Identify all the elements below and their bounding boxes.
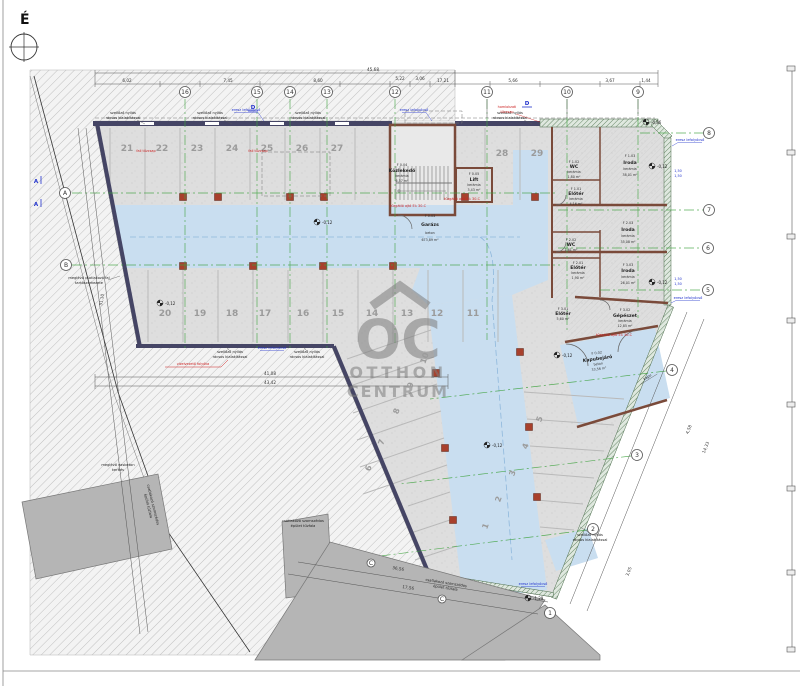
svg-text:rácsos kialakítással: rácsos kialakítással: [213, 355, 248, 359]
grid-bubble: 15: [253, 89, 261, 96]
level-value: -1,29: [533, 596, 544, 601]
dimension-text: 43,42: [264, 380, 276, 385]
level-value: -0,12: [562, 353, 573, 358]
svg-text:eresz lefolyócső: eresz lefolyócső: [258, 346, 287, 350]
dimension-text: 1,50: [674, 277, 682, 281]
parking-number: 23: [191, 144, 204, 154]
section-label: A: [34, 202, 39, 208]
svg-text:csatlakozó szomszédos: csatlakozó szomszédos: [282, 519, 324, 523]
parking-number: 14: [366, 309, 379, 319]
floorplan-canvas: É: [0, 0, 800, 686]
edge-ruler: [787, 66, 795, 652]
svg-text:12,85 m²: 12,85 m²: [617, 324, 633, 328]
svg-text:tűzcsap: tűzcsap: [500, 110, 513, 114]
north-arrow: É: [9, 11, 39, 62]
hydrant-label: fali tűzcsap: [136, 149, 155, 153]
office-floor: [552, 127, 667, 305]
svg-text:kerámia: kerámia: [467, 183, 480, 187]
svg-text:kerámia: kerámia: [621, 234, 634, 238]
hydrant-label: fali tűzcsap: [248, 149, 267, 153]
section-label: A: [34, 179, 39, 185]
watermark-line1: OTTHON: [349, 363, 446, 382]
svg-text:kerámia: kerámia: [395, 174, 408, 178]
parking-number: 16: [297, 309, 310, 319]
svg-text:1,80 m²: 1,80 m²: [568, 175, 582, 179]
neighbor-mark: C: [369, 560, 373, 567]
svg-text:Iroda: Iroda: [623, 160, 637, 166]
grid-bubble: 2: [591, 526, 595, 533]
dimension-text: 3,06: [415, 76, 425, 81]
svg-text:F 2.01: F 2.01: [573, 261, 584, 265]
svg-text:épület tűzfala: épület tűzfala: [291, 524, 316, 528]
room-label-wc1: F 1.02 WC kerámia 1,80 m²: [567, 160, 581, 179]
grid-bubble: 13: [323, 89, 331, 96]
grid-bubble: 12: [391, 89, 399, 96]
parking-number: 15: [332, 309, 345, 319]
fire-door-label: tűzgátló ajtó EI₂ 30-C: [390, 204, 427, 208]
dimension-text: 8,60: [313, 78, 323, 83]
parking-number: 29: [531, 149, 544, 159]
parking-number: 26: [296, 144, 309, 154]
svg-text:szellőző nyílás: szellőző nyílás: [577, 533, 603, 537]
dimension-text: 14,33: [701, 441, 710, 454]
dimension-text: 1,50: [674, 169, 682, 173]
parking-number: 18: [226, 309, 239, 319]
svg-text:rácsos kialakítással: rácsos kialakítással: [106, 116, 141, 120]
grid-bubble: 9: [636, 89, 640, 96]
grid-bubble: 4: [670, 367, 674, 374]
svg-text:kerámia: kerámia: [571, 271, 584, 275]
parking-number: 28: [496, 149, 509, 159]
svg-text:4,16 m²: 4,16 m²: [570, 202, 584, 206]
level-value: -0,12: [165, 301, 176, 306]
dimension-text: 4,58: [685, 424, 693, 435]
svg-text:eresz lefolyócső: eresz lefolyócső: [676, 138, 705, 142]
grid-bubble: 16: [181, 89, 189, 96]
svg-text:eresz lefolyócső: eresz lefolyócső: [400, 108, 429, 112]
parking-number: 27: [331, 144, 344, 154]
svg-text:kerámia: kerámia: [569, 197, 582, 201]
dimension-text: 6,02: [122, 78, 132, 83]
dimension-text: 5,66: [508, 78, 518, 83]
grid-bubble: B: [64, 262, 68, 269]
svg-text:meglévő csatlakozó fal: meglévő csatlakozó fal: [68, 276, 109, 280]
svg-text:szellőző nyílás: szellőző nyílás: [197, 111, 223, 115]
grid-bubble: 3: [635, 452, 639, 459]
svg-text:kerámia: kerámia: [623, 167, 636, 171]
svg-text:F 0.04: F 0.04: [397, 163, 408, 167]
dimension-text: 1,50: [674, 282, 682, 286]
svg-text:F 3.01: F 3.01: [558, 307, 569, 311]
grid-bubble: 1: [548, 610, 552, 617]
north-label: É: [20, 11, 30, 28]
section-label: D: [525, 101, 530, 107]
svg-text:3,43 m²: 3,43 m²: [468, 188, 482, 192]
svg-text:Iroda: Iroda: [621, 268, 635, 274]
svg-text:673,89 m²: 673,89 m²: [421, 238, 439, 242]
level-value: -0,12: [322, 220, 333, 225]
svg-text:rácsos kialakítással: rácsos kialakítással: [573, 538, 608, 542]
dimension-text: 5,22: [395, 76, 405, 81]
svg-text:38,01 m²: 38,01 m²: [622, 173, 638, 177]
neighbor-mark: C: [440, 596, 444, 603]
svg-text:rácsos kialakítással: rácsos kialakítással: [290, 355, 325, 359]
svg-text:homlokzati: homlokzati: [498, 105, 517, 109]
floorplan-drawing: É: [0, 0, 800, 686]
svg-text:F 0.03: F 0.03: [425, 214, 436, 218]
svg-text:F 3.02: F 3.02: [620, 308, 631, 312]
svg-text:F 1.03: F 1.03: [625, 154, 636, 158]
parking-number: 13: [401, 309, 414, 319]
fire-door-label: tűzgátló ajtó EI₂ 30-C: [444, 197, 481, 201]
svg-text:eresz lefolyócső: eresz lefolyócső: [232, 108, 261, 112]
svg-text:F 2.02: F 2.02: [566, 238, 577, 242]
parking-number: 20: [159, 309, 172, 319]
watermark-line2: CENTRUM: [347, 382, 449, 401]
parking-number: 21: [121, 144, 134, 154]
svg-text:1,61 m²: 1,61 m²: [565, 248, 579, 252]
level-value: -0,12: [492, 443, 503, 448]
svg-text:eresz lefolyócső: eresz lefolyócső: [519, 582, 548, 586]
svg-text:kerámia: kerámia: [618, 319, 631, 323]
svg-text:Előtér: Előtér: [568, 190, 584, 197]
svg-text:szellőző nyílás: szellőző nyílás: [294, 350, 320, 354]
dimension-text: 41,08: [264, 371, 276, 376]
svg-text:rácsos kialakítással: rácsos kialakítással: [493, 116, 528, 120]
dimension-text: 1,50: [674, 174, 682, 178]
svg-text:F 1.01: F 1.01: [571, 187, 582, 191]
svg-text:szellőző nyílás: szellőző nyílás: [217, 350, 243, 354]
svg-text:meglévő vasbeton: meglévő vasbeton: [101, 463, 134, 467]
svg-text:F 1.02: F 1.02: [569, 160, 580, 164]
level-value: -0,86: [651, 120, 662, 125]
svg-text:kerámia: kerámia: [567, 170, 580, 174]
dimension-text: 7,45: [223, 78, 233, 83]
svg-text:beton: beton: [425, 231, 435, 235]
parking-number: 22: [156, 144, 169, 154]
grid-bubble: 5: [706, 287, 710, 294]
svg-text:rácsos kialakítással: rácsos kialakítással: [193, 116, 228, 120]
svg-text:rácsos kialakítással: rácsos kialakítással: [291, 116, 326, 120]
level-value: -0,12: [657, 280, 668, 285]
parking-number: 24: [226, 144, 239, 154]
svg-text:szellőző nyílás: szellőző nyílás: [295, 111, 321, 115]
svg-text:Előtér: Előtér: [555, 310, 571, 317]
grid-bubble: 8: [707, 130, 711, 137]
dimension-text: 3,05: [625, 566, 633, 577]
parking-number: 19: [194, 309, 207, 319]
level-value: -0,12: [657, 164, 668, 169]
grid-bubble: 7: [707, 207, 711, 214]
svg-text:Előtér: Előtér: [570, 264, 586, 271]
svg-text:szellőző nyílás: szellőző nyílás: [110, 111, 136, 115]
svg-text:F 3.03: F 3.03: [623, 263, 634, 267]
svg-text:kerítés: kerítés: [112, 468, 124, 472]
dimension-text: 45,68: [367, 67, 379, 72]
dimension-text: 17,21: [437, 78, 449, 83]
svg-text:eresz lefolyócső: eresz lefolyócső: [674, 296, 703, 300]
svg-text:Garázs: Garázs: [421, 221, 439, 228]
dimension-text: 3,67: [605, 78, 615, 83]
svg-text:Iroda: Iroda: [621, 227, 635, 233]
fire-door-label: tűzgátló ajtó EI₂ 30-C: [596, 333, 633, 337]
svg-text:6,57 m²: 6,57 m²: [396, 179, 410, 183]
grid-bubble: 10: [563, 89, 571, 96]
parking-number: 17: [259, 309, 272, 319]
grid-bubble: 11: [483, 89, 491, 96]
svg-text:35,08 m²: 35,08 m²: [620, 240, 636, 244]
svg-text:1,90 m²: 1,90 m²: [572, 276, 586, 280]
parking-number: 11: [467, 309, 480, 319]
dimension-text: 1,44: [641, 78, 651, 83]
svg-text:26,01 m²: 26,01 m²: [620, 281, 636, 285]
parking-number: 12: [431, 309, 444, 319]
svg-text:vízelvezető folyóka: vízelvezető folyóka: [177, 362, 209, 366]
svg-text:tartószerkezete: tartószerkezete: [75, 281, 104, 285]
grid-bubble: 6: [706, 245, 710, 252]
svg-text:F 2.03: F 2.03: [623, 221, 634, 225]
svg-text:Gépészet: Gépészet: [613, 312, 638, 319]
grid-bubble: 14: [286, 89, 294, 96]
svg-text:kerámia: kerámia: [621, 275, 634, 279]
svg-text:5,60 m²: 5,60 m²: [557, 317, 571, 321]
svg-text:F 0.05: F 0.05: [469, 172, 480, 176]
